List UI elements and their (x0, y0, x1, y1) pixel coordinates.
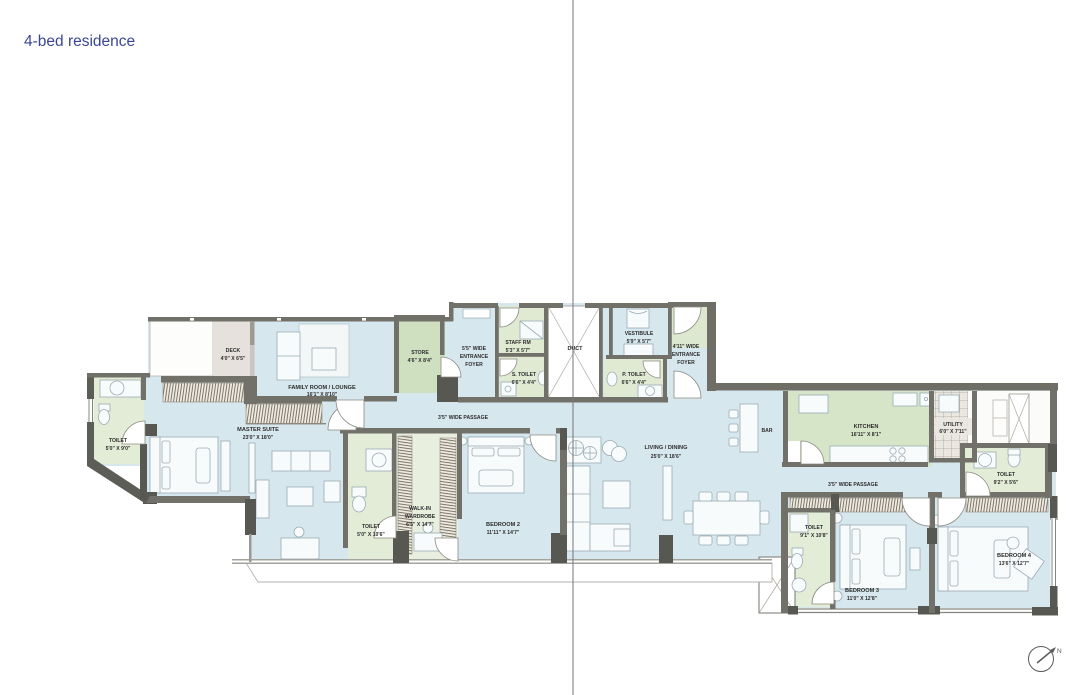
svg-text:WARDROBE: WARDROBE (405, 514, 436, 520)
svg-text:FOYER: FOYER (465, 362, 483, 368)
svg-text:9'2" X 5'6": 9'2" X 5'6" (994, 480, 1019, 486)
svg-text:5'5" WIDE: 5'5" WIDE (462, 346, 487, 352)
svg-text:ENTRANCE: ENTRANCE (672, 352, 701, 358)
svg-text:23'0" X 18'0": 23'0" X 18'0" (243, 435, 274, 441)
svg-text:MASTER SUITE: MASTER SUITE (237, 427, 279, 433)
svg-text:6'6" X 4'4": 6'6" X 4'4" (512, 380, 537, 386)
svg-text:13'6" X 12'7": 13'6" X 12'7" (999, 561, 1030, 567)
svg-text:BEDROOM 2: BEDROOM 2 (486, 522, 520, 528)
svg-text:P. TOILET: P. TOILET (622, 372, 646, 378)
svg-text:TOILET: TOILET (997, 472, 1016, 478)
svg-text:3'5" WIDE PASSAGE: 3'5" WIDE PASSAGE (438, 415, 489, 421)
svg-text:TOILET: TOILET (805, 525, 824, 531)
svg-text:6'5" X 14'7": 6'5" X 14'7" (406, 522, 434, 528)
svg-text:6'6" X 4'4": 6'6" X 4'4" (622, 380, 647, 386)
svg-text:DUCT: DUCT (568, 346, 584, 352)
svg-text:11'0" X 12'8": 11'0" X 12'8" (847, 596, 878, 602)
svg-text:KITCHEN: KITCHEN (854, 424, 879, 430)
svg-text:ENTRANCE: ENTRANCE (460, 354, 489, 360)
svg-text:TOILET: TOILET (362, 524, 381, 530)
svg-text:TOILET: TOILET (109, 438, 128, 444)
svg-text:UTILITY: UTILITY (943, 422, 963, 428)
svg-text:5'9" X 5'7": 5'9" X 5'7" (627, 339, 652, 345)
svg-text:9'1" X 10'8": 9'1" X 10'8" (800, 533, 828, 539)
svg-text:11'11" X 14'7": 11'11" X 14'7" (487, 530, 520, 536)
svg-text:FAMILY ROOM / LOUNGE: FAMILY ROOM / LOUNGE (288, 385, 356, 391)
svg-text:WALK-IN: WALK-IN (409, 506, 431, 512)
svg-text:BEDROOM 3: BEDROOM 3 (845, 588, 879, 594)
svg-text:4-bed residence: 4-bed residence (24, 33, 135, 50)
svg-text:16'11" X 8'1": 16'11" X 8'1" (851, 432, 882, 438)
svg-text:6'0" X 7'11": 6'0" X 7'11" (939, 429, 967, 435)
svg-text:STORE: STORE (411, 350, 429, 356)
svg-text:4'0" X 6'5": 4'0" X 6'5" (221, 356, 246, 362)
svg-text:4'6" X 8'4": 4'6" X 8'4" (408, 358, 433, 364)
svg-text:LIVING / DINING: LIVING / DINING (645, 445, 688, 451)
svg-text:3'5" WIDE PASSAGE: 3'5" WIDE PASSAGE (828, 482, 879, 488)
svg-text:DECK: DECK (226, 348, 241, 354)
svg-text:VESTIBULE: VESTIBULE (625, 331, 654, 337)
svg-text:BAR: BAR (761, 428, 772, 434)
svg-text:4'11" WIDE: 4'11" WIDE (673, 344, 700, 350)
svg-text:5'3" X 5'7": 5'3" X 5'7" (506, 348, 531, 354)
svg-text:BEDROOM 4: BEDROOM 4 (997, 553, 1032, 559)
svg-text:5'0" X 9'0": 5'0" X 9'0" (106, 446, 131, 452)
svg-text:5'0" X 10'6": 5'0" X 10'6" (357, 532, 385, 538)
svg-text:FOYER: FOYER (677, 360, 695, 366)
svg-text:STAFF RM: STAFF RM (505, 340, 530, 346)
svg-text:16'1" X 8'10": 16'1" X 8'10" (307, 392, 338, 398)
svg-text:S. TOILET: S. TOILET (512, 372, 537, 378)
svg-text:25'0" X 18'6": 25'0" X 18'6" (651, 454, 682, 460)
svg-text:N: N (1057, 648, 1062, 655)
